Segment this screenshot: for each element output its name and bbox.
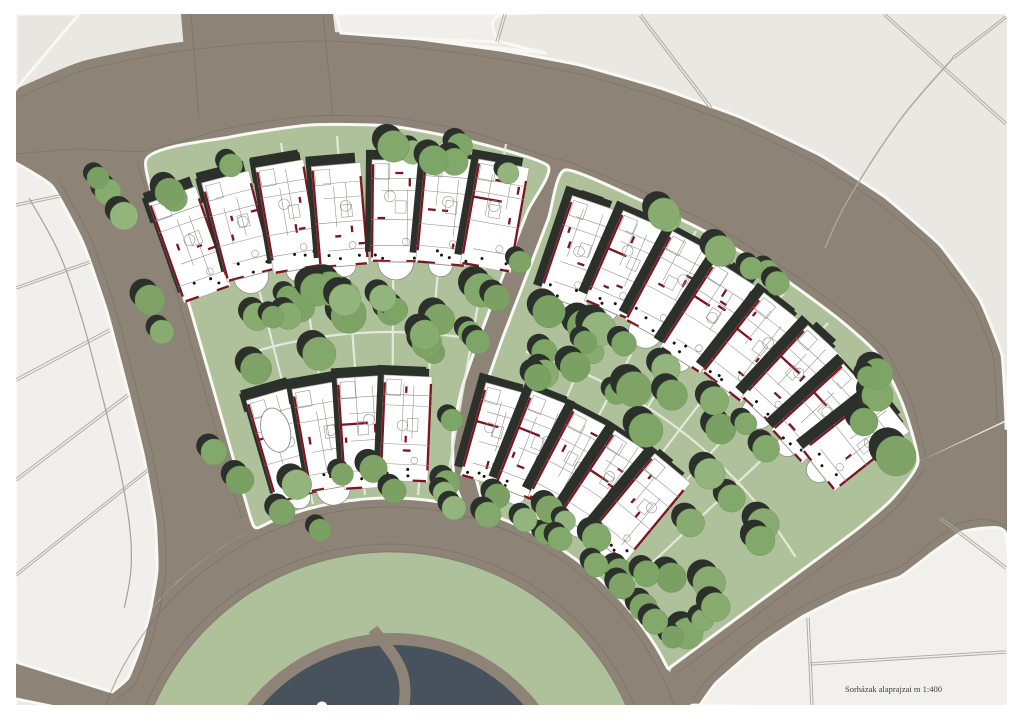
svg-text:Sorházak alaprajzai m 1:400: Sorházak alaprajzai m 1:400 [845, 684, 942, 694]
